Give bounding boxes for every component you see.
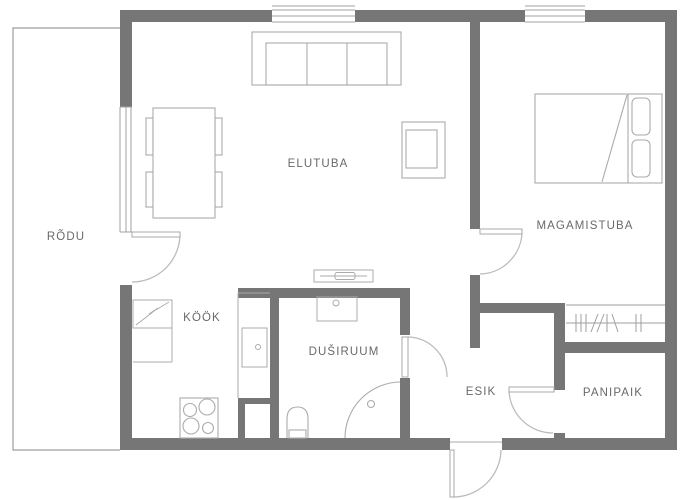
room-label-panipaik: PANIPAIK [583, 387, 643, 399]
appliance-knob [256, 345, 261, 350]
floor-plan-drawing [0, 0, 700, 500]
floor-plan: RÕDU ELUTUBA MAGAMISTUBA KÖÖK DUŠIRUUM E… [0, 0, 700, 500]
room-label-kook: KÖÖK [183, 312, 221, 324]
shower-drain [368, 401, 375, 408]
entrance-door [450, 442, 502, 497]
dining-table [146, 108, 222, 218]
room-label-dusiruum: DUŠIRUUM [309, 346, 380, 358]
faucet [333, 300, 339, 306]
room-label-magamistuba: MAGAMISTUBA [536, 220, 633, 232]
storage-door [509, 387, 554, 433]
radiator [314, 270, 373, 282]
burner [203, 423, 214, 434]
window-bedroom-top [525, 6, 585, 22]
room-label-esik: ESIK [466, 386, 497, 398]
sofa [252, 32, 401, 85]
clothes-rail [566, 305, 665, 332]
burner [184, 404, 197, 417]
corner-shower [345, 382, 400, 438]
burner [183, 418, 199, 434]
pillow [632, 98, 650, 135]
shower-room-door [402, 337, 447, 377]
window-balcony-side [120, 107, 132, 232]
room-label-rodu: RÕDU [47, 231, 85, 243]
kitchen-counter [238, 293, 270, 398]
armchair [402, 122, 445, 178]
bedroom-door [480, 229, 522, 274]
room-label-elutuba: ELUTUBA [288, 158, 349, 170]
tall-cabinet [133, 328, 172, 362]
electric-boiler [133, 300, 172, 328]
stove [180, 398, 218, 438]
balcony-door [132, 232, 180, 282]
washbasin [317, 297, 357, 321]
pillow [632, 140, 650, 177]
burner [199, 399, 215, 415]
double-bed [535, 94, 662, 183]
window-living-room-top [272, 6, 355, 22]
toilet [287, 407, 308, 438]
built-in-appliance [242, 328, 267, 367]
